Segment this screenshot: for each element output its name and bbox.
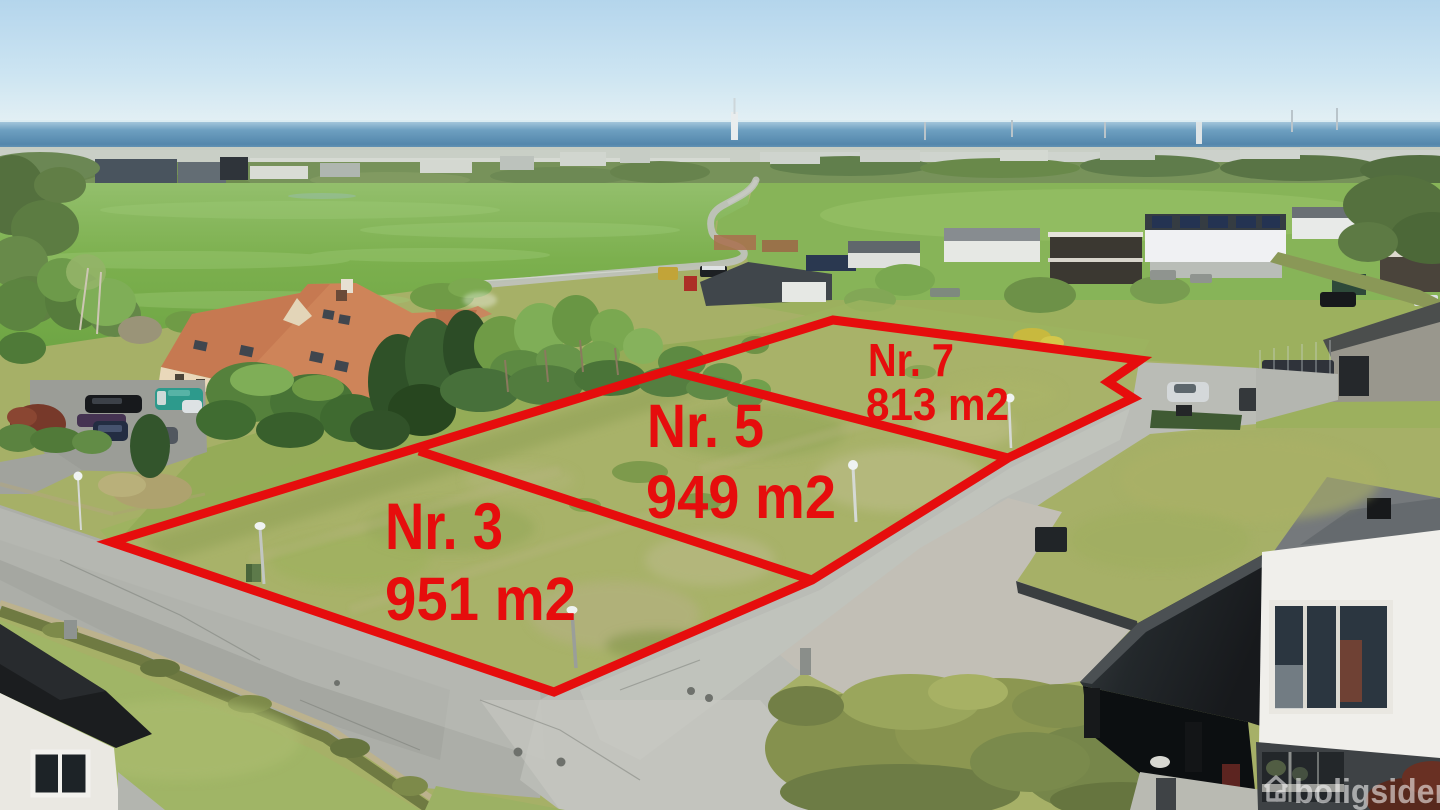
svg-text:951 m2: 951 m2 xyxy=(385,565,576,633)
svg-text:Nr. 3: Nr. 3 xyxy=(385,489,503,563)
svg-text:949 m2: 949 m2 xyxy=(646,463,836,531)
svg-text:boligsiden: boligsiden xyxy=(1294,773,1440,810)
svg-text:813 m2: 813 m2 xyxy=(866,379,1009,430)
svg-text:Nr. 5: Nr. 5 xyxy=(647,392,764,460)
